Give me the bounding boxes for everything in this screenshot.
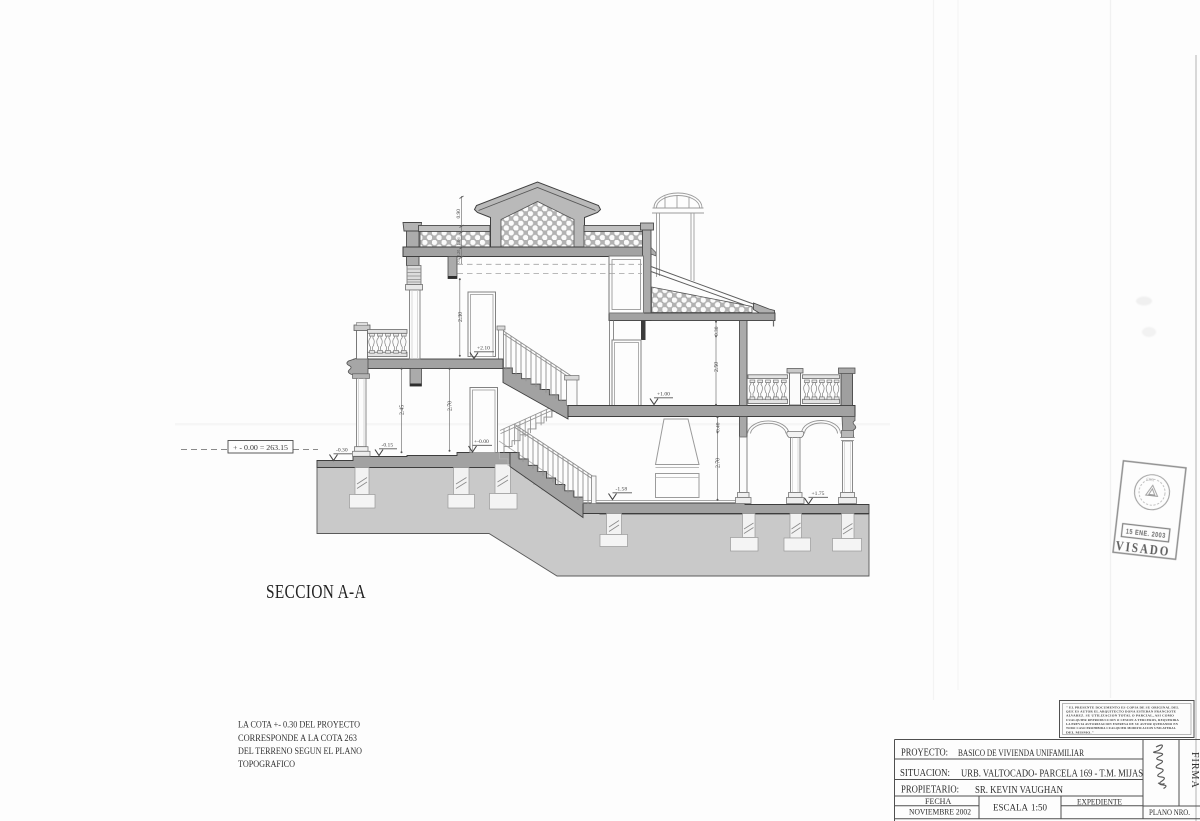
svg-text:+1.75: +1.75 bbox=[812, 491, 825, 497]
svg-text:0.60: 0.60 bbox=[456, 256, 461, 263]
svg-text:PROPIETARIO:: PROPIETARIO: bbox=[901, 785, 959, 796]
svg-text:0.40: 0.40 bbox=[716, 422, 722, 432]
svg-text:2.30: 2.30 bbox=[458, 312, 464, 322]
svg-text:CORRESPONDE A LA COTA 263: CORRESPONDE A LA COTA 263 bbox=[238, 734, 357, 744]
svg-text:-0.30: -0.30 bbox=[336, 448, 348, 454]
svg-text:SR. KEVIN VAUGHAN: SR. KEVIN VAUGHAN bbox=[975, 785, 1063, 796]
svg-text:TOPOGRAFICO: TOPOGRAFICO bbox=[238, 760, 295, 770]
svg-text:TODO CASO PROHIBIDA CUALQUIER: TODO CASO PROHIBIDA CUALQUIER MODIFICACI… bbox=[1066, 726, 1176, 730]
svg-text:FIRMA: FIRMA bbox=[1189, 752, 1200, 789]
svg-text:+1.00: +1.00 bbox=[657, 392, 670, 398]
svg-text:-1.58: -1.58 bbox=[616, 487, 628, 493]
svg-text:EXPEDIENTE: EXPEDIENTE bbox=[1077, 798, 1122, 807]
svg-text:URB. VALTOCADO- PARCELA 169 -: URB. VALTOCADO- PARCELA 169 - T.M. MIJAS bbox=[961, 769, 1143, 780]
svg-text:FECHA: FECHA bbox=[925, 797, 951, 806]
svg-text:BASICO DE VIVIENDA UNIFAMILIA: BASICO DE VIVIENDA UNIFAMILIAR bbox=[958, 748, 1084, 759]
svg-text:PLANO NRO.: PLANO NRO. bbox=[1149, 808, 1190, 817]
svg-text:0.90: 0.90 bbox=[456, 209, 462, 219]
svg-text:-0.15: -0.15 bbox=[382, 443, 394, 449]
svg-text:ESCALA: ESCALA bbox=[993, 803, 1029, 813]
svg-text:DEL TERRENO SEGUN EL PLANO: DEL TERRENO SEGUN EL PLANO bbox=[238, 747, 362, 757]
svg-text:NOVIEMBRE 2002: NOVIEMBRE 2002 bbox=[909, 808, 971, 817]
svg-text:SECCION A-A: SECCION A-A bbox=[266, 581, 366, 603]
svg-text:2.70: 2.70 bbox=[448, 401, 454, 411]
svg-text:2.70: 2.70 bbox=[716, 458, 722, 468]
svg-text:PROYECTO:: PROYECTO: bbox=[901, 747, 948, 759]
svg-text:SITUACION:: SITUACION: bbox=[900, 767, 950, 779]
svg-text:DEL MISMO.": DEL MISMO." bbox=[1066, 731, 1094, 735]
svg-text:+ - 0.00 = 263.15: + - 0.00 = 263.15 bbox=[233, 443, 288, 452]
svg-text:0.20: 0.20 bbox=[456, 250, 461, 257]
svg-text:+2.10: +2.10 bbox=[477, 346, 490, 352]
svg-text:1.06: 1.06 bbox=[456, 237, 461, 246]
svg-text:2.50: 2.50 bbox=[714, 362, 720, 372]
svg-text:0.30: 0.30 bbox=[714, 326, 720, 336]
svg-text:+-0.00: +-0.00 bbox=[474, 439, 489, 445]
svg-text:1:50: 1:50 bbox=[1031, 803, 1048, 813]
svg-text:LA COTA +- 0.30 DEL PROYECTO: LA COTA +- 0.30 DEL PROYECTO bbox=[238, 721, 360, 731]
svg-text:2.45: 2.45 bbox=[400, 405, 406, 415]
